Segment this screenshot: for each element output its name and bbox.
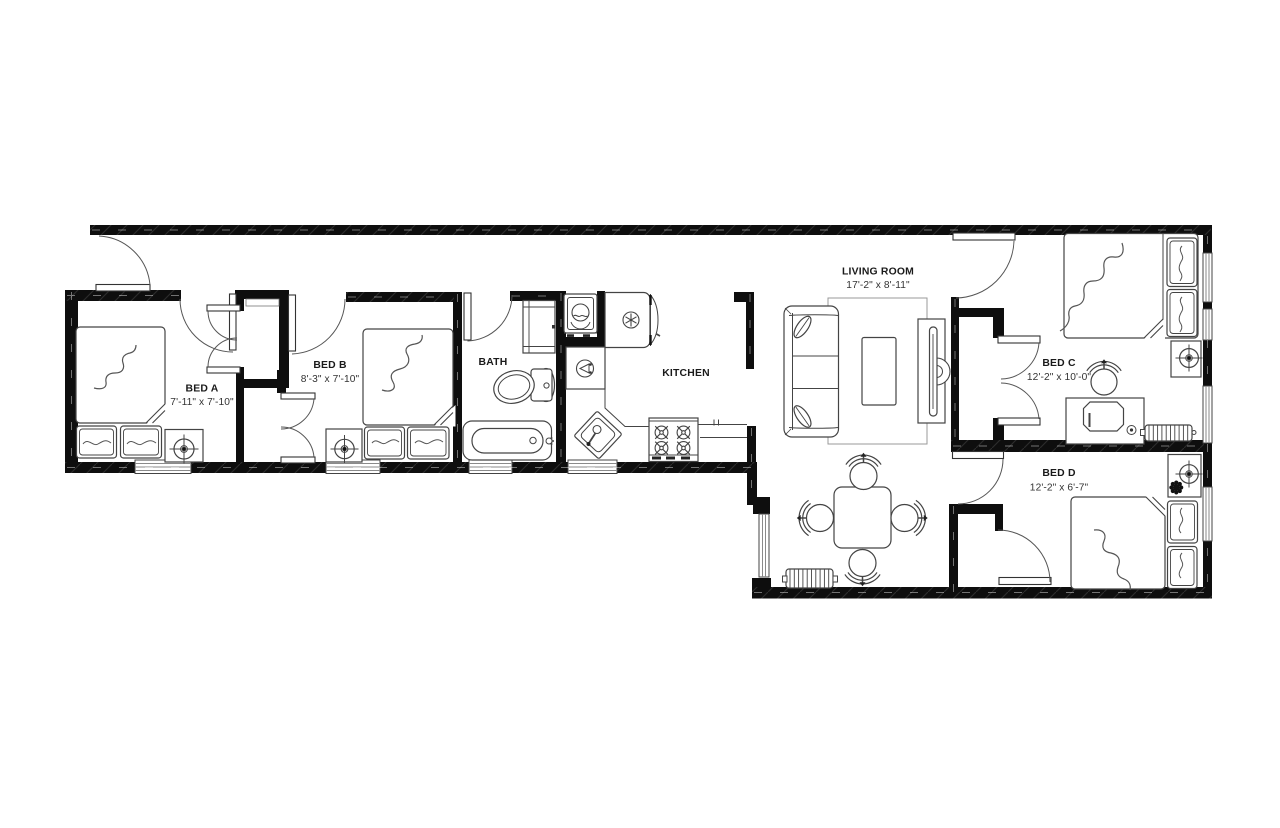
svg-text:BED C: BED C xyxy=(1042,358,1076,369)
svg-text:LIVING ROOM: LIVING ROOM xyxy=(842,267,914,278)
svg-text:BED A: BED A xyxy=(186,384,219,395)
svg-text:8'-3" x 7'-10": 8'-3" x 7'-10" xyxy=(301,374,360,385)
svg-text:BATH: BATH xyxy=(479,357,508,368)
svg-text:17'-2" x 8'-11": 17'-2" x 8'-11" xyxy=(846,280,910,291)
svg-text:7'-11" x 7'-10": 7'-11" x 7'-10" xyxy=(170,397,234,408)
svg-text:12'-2" x 6'-7": 12'-2" x 6'-7" xyxy=(1030,483,1089,494)
svg-text:BED D: BED D xyxy=(1042,468,1076,479)
svg-text:KITCHEN: KITCHEN xyxy=(662,368,710,379)
svg-text:12'-2" x 10'-0": 12'-2" x 10'-0" xyxy=(1027,372,1091,383)
svg-text:BED B: BED B xyxy=(313,360,347,371)
